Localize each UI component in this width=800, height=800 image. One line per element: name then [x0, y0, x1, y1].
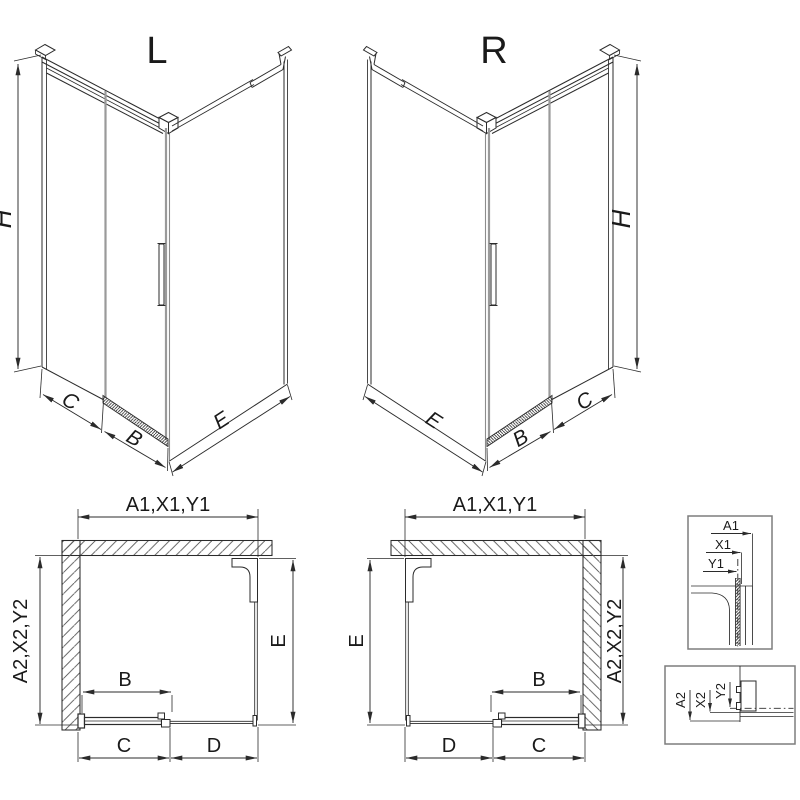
iso-left-title: L — [146, 30, 167, 72]
plan-left-dim-left-label: A2,X2,Y2 — [10, 599, 32, 684]
technical-drawing-canvas: L H C B E R H C B E A1,X1,Y1 A2,X2,Y2 E … — [0, 0, 800, 800]
plan-right-dim-d-label: D — [442, 735, 456, 757]
plan-right-dim-c-label: C — [532, 735, 546, 757]
iso-left-dim-e-label: E — [209, 407, 234, 434]
iso-left-dim-c-label: C — [58, 388, 83, 416]
iso-view-left: L H C B E — [0, 30, 292, 476]
plan-right-dim-e-label: E — [346, 634, 368, 647]
iso-right-dim-c-label: C — [572, 387, 597, 415]
detail-top-a1-label: A1 — [723, 518, 739, 533]
plan-view-right: A1,X1,Y1 A2,X2,Y2 E B D C — [346, 494, 628, 762]
detail-bottom-y2-label: Y2 — [713, 683, 728, 699]
plan-right-dim-right-label: A2,X2,Y2 — [604, 599, 626, 684]
detail-bottom-x2-label: X2 — [693, 692, 708, 708]
detail-bottom-a2-label: A2 — [673, 692, 688, 708]
iso-left-dim-b-label: B — [122, 425, 146, 452]
plan-view-left: A1,X1,Y1 A2,X2,Y2 E B C D — [10, 494, 296, 762]
shower-enclosure-spec-diagram: L H C B E R H C B E A1,X1,Y1 A2,X2,Y2 E … — [0, 0, 800, 800]
iso-right-geometry — [363, 45, 641, 477]
iso-right-title: R — [480, 30, 507, 72]
plan-right-dim-top-label: A1,X1,Y1 — [453, 494, 538, 516]
iso-view-right: R H C B E — [363, 30, 641, 476]
iso-left-geometry — [14, 45, 292, 477]
detail-top-x1-label: X1 — [715, 537, 731, 552]
plan-left-dim-d-label: D — [207, 735, 221, 757]
plan-left-dim-top-label: A1,X1,Y1 — [126, 494, 211, 516]
iso-right-dim-height-label: H — [606, 209, 636, 228]
plan-left-dim-e-label: E — [268, 634, 290, 647]
plan-right-geometry — [367, 509, 628, 762]
iso-left-dim-height-label: H — [0, 209, 17, 228]
plan-left-dim-c-label: C — [117, 735, 131, 757]
detail-corner-top: A1 X1 Y1 — [688, 516, 772, 649]
detail-corner-bottom: A2 X2 Y2 — [665, 666, 795, 744]
iso-right-dim-b-label: B — [509, 425, 533, 452]
detail-top-y1-label: Y1 — [708, 556, 724, 571]
plan-left-geometry — [35, 509, 296, 762]
iso-right-dim-e-label: E — [421, 407, 446, 434]
plan-left-dim-b-label: B — [118, 669, 131, 691]
plan-right-dim-b-label: B — [532, 669, 545, 691]
